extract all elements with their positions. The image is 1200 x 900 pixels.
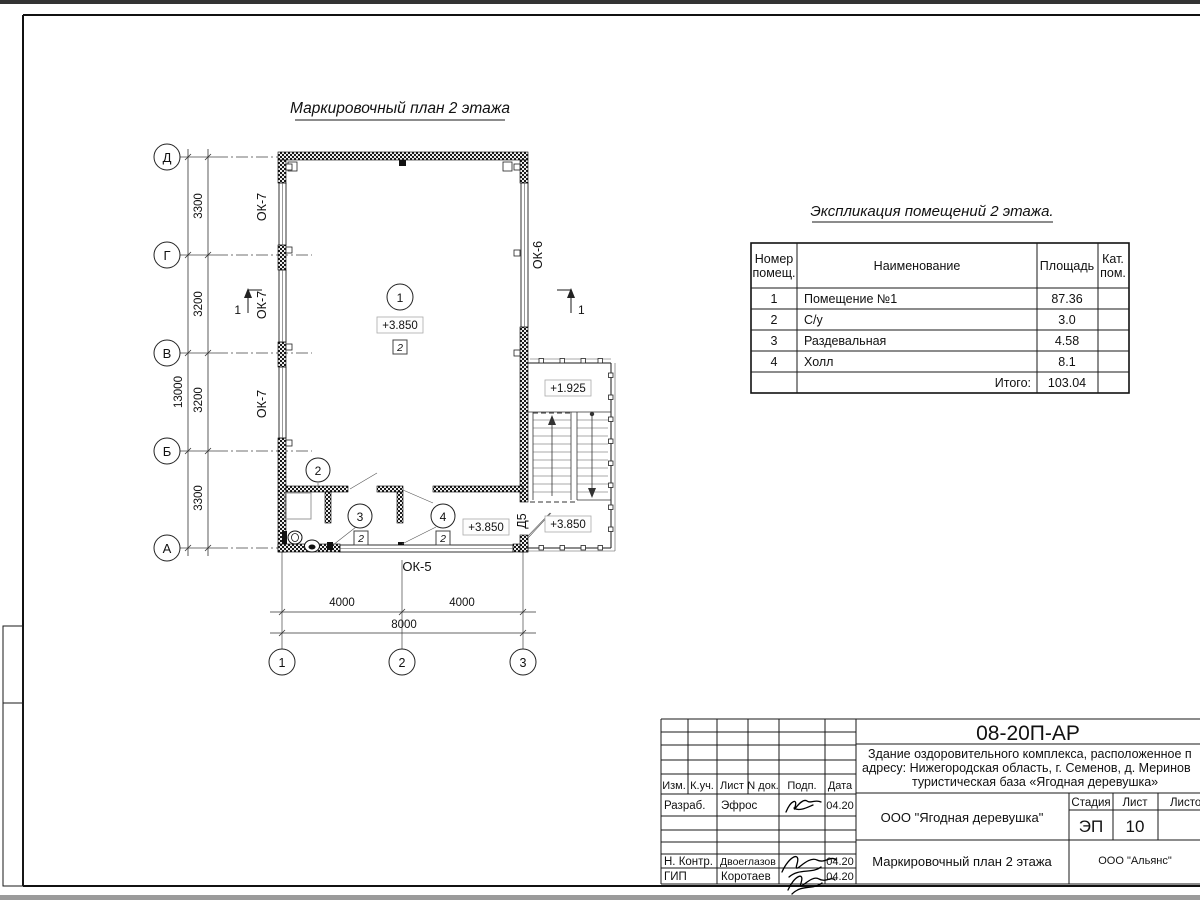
col-header-num-line2: помещ.	[752, 266, 795, 280]
window-label-ok7-1: ОК-7	[255, 193, 269, 221]
dim-bottom-total: 8000	[391, 619, 417, 631]
level-room1: +3.850	[382, 320, 418, 332]
table-row: 2 С/у 3.0	[771, 313, 1076, 327]
room-tag-1: 1	[397, 291, 404, 305]
row3-num: 3	[771, 334, 778, 348]
window-label-ok5: ОК-5	[402, 559, 431, 574]
sink	[305, 540, 320, 552]
bathroom-fixtures	[282, 493, 320, 552]
axis-bubble-v: В	[163, 346, 172, 361]
section-mark-right: 1	[557, 288, 585, 317]
room-tag-3: 3	[357, 510, 364, 524]
tb-header-ndok: N док.	[747, 780, 778, 792]
left-axes: Д Г В Б А 3300 3200 3200 3300 13000	[154, 144, 312, 561]
tb-doc-code: 08-20П-АР	[976, 722, 1080, 745]
windows	[279, 183, 528, 552]
tb-stage-header: Стадия	[1071, 797, 1110, 809]
tb-firm: ООО "Альянс"	[1098, 855, 1172, 867]
table-row: 1 Помещение №1 87.36	[771, 292, 1083, 306]
tb-nkontr-label: Н. Контр.	[664, 856, 713, 868]
tb-razrab-date: 04.20	[826, 800, 854, 812]
drawing-canvas: Маркировочный план 2 этажа Д Г	[0, 0, 1200, 900]
table-row: 4 Холл 8.1	[771, 355, 1076, 369]
toilet	[282, 531, 302, 544]
window-bottom-edge	[0, 895, 1200, 900]
tb-sheet-header: Лист	[1123, 797, 1149, 809]
margin-box-lower	[3, 703, 23, 886]
tb-desc-line2: адресу: Нижегородская область, г. Семено…	[862, 761, 1191, 775]
tb-gip-date: 04.20	[826, 871, 854, 883]
dim-bottom-2: 4000	[449, 597, 475, 609]
finish-mark-room1: 2	[396, 342, 403, 354]
col-header-name: Наименование	[874, 259, 961, 273]
tb-gip-name: Коротаев	[721, 871, 771, 883]
col-header-cat-line1: Кат.	[1102, 252, 1124, 266]
axis-bubble-g: Г	[163, 248, 170, 263]
level-hall: +3.850	[468, 522, 504, 534]
title-block: Изм. К.уч. Лист N док. Подп. Дата Разраб…	[661, 719, 1200, 894]
table-total-row: Итого: 103.04	[995, 376, 1086, 390]
dim-left-1: 3300	[193, 193, 205, 219]
total-label: Итого:	[995, 376, 1031, 390]
axis-bubble-3: 3	[520, 656, 527, 670]
room-tag-4: 4	[440, 510, 447, 524]
tb-desc-line1: Здание оздоровительного комплекса, распо…	[868, 747, 1192, 761]
finish-mark-room4: 2	[439, 533, 446, 545]
tb-org: ООО "Ягодная деревушка"	[881, 810, 1044, 825]
window-top-edge	[0, 0, 1200, 4]
tb-header-list: Лист	[720, 780, 744, 792]
window-label-ok7-2: ОК-7	[255, 291, 269, 319]
dim-left-2: 3200	[193, 291, 205, 317]
axis-bubble-2: 2	[399, 656, 406, 670]
col-header-num-line1: Номер	[755, 252, 794, 266]
row1-area: 87.36	[1051, 292, 1082, 306]
dim-left-total: 13000	[173, 376, 185, 408]
tb-stage-value: ЭП	[1079, 817, 1103, 836]
tb-sheet-value: 10	[1126, 817, 1145, 836]
tb-nkontr-date: 04.20	[826, 856, 854, 868]
plan-title: Маркировочный план 2 этажа	[290, 100, 510, 117]
row2-name: С/у	[804, 313, 824, 327]
window-label-ok6: ОК-6	[531, 241, 545, 269]
level-stair-upper: +1.925	[550, 383, 586, 395]
tb-header-data: Дата	[828, 780, 853, 792]
stair-down-arrow	[588, 412, 596, 498]
row4-num: 4	[771, 355, 778, 369]
shower-tray	[285, 493, 311, 519]
tb-sheets-header: Листо	[1170, 797, 1200, 809]
row4-area: 8.1	[1058, 355, 1075, 369]
row2-num: 2	[771, 313, 778, 327]
stair-treads	[533, 420, 608, 492]
row1-num: 1	[771, 292, 778, 306]
axis-bubble-d: Д	[163, 150, 172, 165]
tb-header-podp: Подп.	[787, 780, 816, 792]
section-label-left: 1	[234, 303, 241, 317]
explication-table: Экспликация помещений 2 этажа. Номер пом…	[751, 203, 1129, 393]
tb-razrab-label: Разраб.	[664, 800, 705, 812]
row3-name: Раздевальная	[804, 334, 886, 348]
row4-name: Холл	[804, 355, 833, 369]
tb-nkontr-name: Двоеглазов	[720, 856, 776, 868]
row1-name: Помещение №1	[804, 292, 897, 306]
dim-left-4: 3300	[193, 485, 205, 511]
row3-area: 4.58	[1055, 334, 1079, 348]
signature-razrab	[786, 800, 821, 812]
door-label-d5: Д5	[515, 513, 529, 528]
tb-razrab-name: Эфрос	[721, 800, 758, 812]
top-wall-tick	[399, 160, 406, 166]
drawing-sheet: Маркировочный план 2 этажа Д Г	[0, 0, 1200, 900]
axis-bubble-1: 1	[279, 656, 286, 670]
room-tag-2: 2	[315, 464, 322, 478]
col-header-area: Площадь	[1040, 259, 1094, 273]
dim-left-3: 3200	[193, 387, 205, 413]
tb-doc-name: Маркировочный план 2 этажа	[872, 854, 1052, 869]
finish-mark-room3: 2	[357, 533, 364, 545]
level-stair-lower: +3.850	[550, 519, 586, 531]
section-label-right: 1	[578, 303, 585, 317]
table-row: 3 Раздевальная 4.58	[771, 334, 1080, 348]
tb-header-kuch: К.уч.	[690, 780, 714, 792]
tb-desc-line3: туристическая база «Ягодная деревушка»	[912, 775, 1158, 789]
margin-box-upper	[3, 626, 23, 703]
dim-bottom-1: 4000	[329, 597, 355, 609]
window-label-ok7-3: ОК-7	[255, 390, 269, 418]
tb-gip-label: ГИП	[664, 871, 687, 883]
axis-bubble-b: Б	[163, 444, 172, 459]
total-value: 103.04	[1048, 376, 1086, 390]
axis-bubble-a: А	[163, 541, 172, 556]
row2-area: 3.0	[1058, 313, 1075, 327]
col-header-cat-line2: пом.	[1100, 266, 1126, 280]
tb-header-izm: Изм.	[662, 780, 686, 792]
partitions	[286, 486, 523, 523]
explication-title: Экспликация помещений 2 этажа.	[810, 203, 1053, 220]
